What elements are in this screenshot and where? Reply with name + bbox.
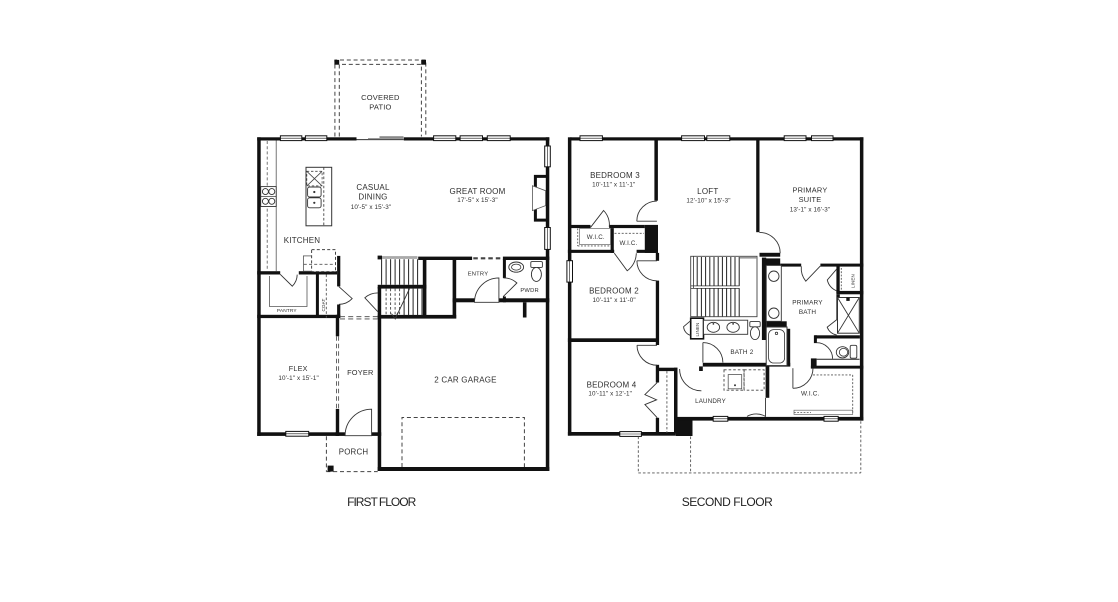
svg-text:12'-10" x 15'-3": 12'-10" x 15'-3" — [686, 197, 730, 204]
svg-text:SECOND FLOOR: SECOND FLOOR — [682, 495, 773, 509]
svg-text:CASUAL: CASUAL — [356, 183, 390, 192]
svg-text:2 CAR GARAGE: 2 CAR GARAGE — [434, 375, 496, 384]
svg-text:PANTRY: PANTRY — [277, 308, 297, 314]
svg-text:W.I.C.: W.I.C. — [619, 240, 637, 247]
svg-text:PRIMARY: PRIMARY — [792, 300, 823, 307]
svg-text:SUITE: SUITE — [799, 195, 822, 204]
svg-text:13'-1" x 16'-3": 13'-1" x 16'-3" — [790, 206, 831, 213]
svg-text:LINEN: LINEN — [850, 274, 855, 288]
svg-text:FIRST FLOOR: FIRST FLOOR — [347, 495, 416, 509]
svg-text:W.I.C.: W.I.C. — [587, 234, 605, 241]
svg-text:10'-5" x 15'-3": 10'-5" x 15'-3" — [351, 204, 392, 211]
svg-text:BATH 2: BATH 2 — [730, 349, 753, 356]
svg-text:FOYER: FOYER — [347, 368, 373, 377]
svg-text:KITCHEN: KITCHEN — [284, 236, 321, 245]
svg-text:BEDROOM 3: BEDROOM 3 — [590, 171, 640, 180]
svg-text:DINING: DINING — [358, 193, 387, 202]
svg-text:COAT: COAT — [321, 299, 326, 312]
svg-text:LINEN: LINEN — [695, 323, 700, 337]
svg-text:LAUNDRY: LAUNDRY — [695, 398, 726, 405]
svg-text:COVERED: COVERED — [361, 93, 400, 102]
svg-text:LOFT: LOFT — [697, 187, 718, 196]
svg-text:PRIMARY: PRIMARY — [793, 185, 828, 194]
svg-text:10'-11" x 11'-1": 10'-11" x 11'-1" — [592, 182, 635, 189]
svg-text:FLEX: FLEX — [289, 364, 308, 373]
svg-text:10'-1" x 15'-1": 10'-1" x 15'-1" — [278, 375, 319, 382]
svg-text:W.I.C.: W.I.C. — [801, 390, 820, 397]
svg-text:BEDROOM 2: BEDROOM 2 — [589, 286, 639, 295]
svg-text:BEDROOM 4: BEDROOM 4 — [587, 381, 637, 390]
svg-text:17'-5" x 15'-3": 17'-5" x 15'-3" — [457, 197, 498, 204]
svg-text:GREAT ROOM: GREAT ROOM — [450, 187, 506, 196]
svg-text:BATH: BATH — [799, 309, 817, 316]
svg-text:PORCH: PORCH — [339, 447, 369, 456]
svg-text:ENTRY: ENTRY — [468, 271, 489, 277]
svg-text:PWDR: PWDR — [520, 288, 539, 294]
svg-text:PATIO: PATIO — [369, 103, 391, 112]
svg-text:10'-11" x 11'-0": 10'-11" x 11'-0" — [592, 297, 635, 304]
svg-text:10'-11" x 12'-1": 10'-11" x 12'-1" — [588, 391, 632, 398]
